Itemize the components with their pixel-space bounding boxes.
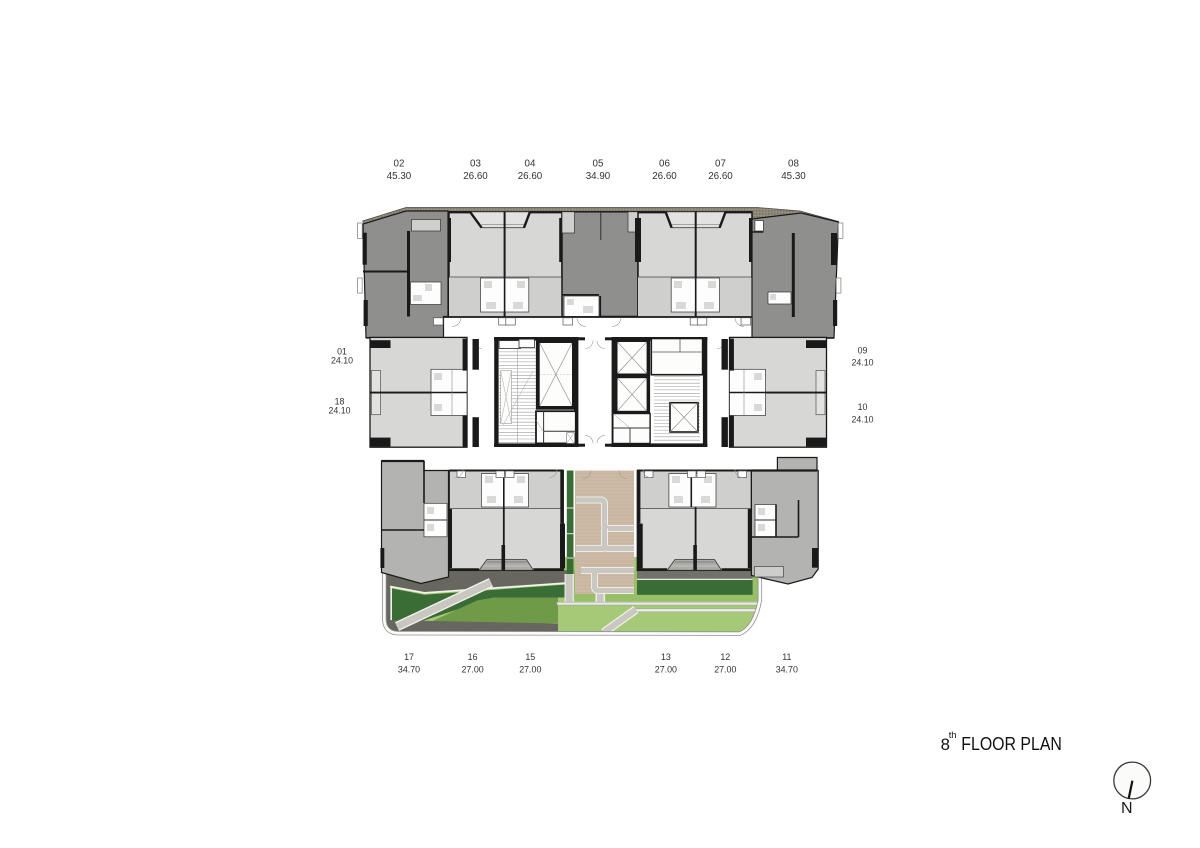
- svg-text:06: 06: [659, 159, 670, 170]
- svg-text:02: 02: [394, 159, 405, 170]
- svg-text:N: N: [1121, 800, 1133, 817]
- svg-text:04: 04: [525, 159, 536, 170]
- svg-text:24.10: 24.10: [328, 405, 350, 415]
- svg-text:24.10: 24.10: [851, 358, 873, 368]
- svg-text:16: 16: [468, 652, 478, 662]
- svg-text:45.30: 45.30: [781, 171, 806, 182]
- svg-text:17: 17: [404, 652, 414, 662]
- svg-text:27.00: 27.00: [519, 665, 541, 675]
- svg-text:th: th: [949, 730, 957, 740]
- svg-text:13: 13: [661, 652, 671, 662]
- svg-text:26.60: 26.60: [463, 171, 488, 182]
- svg-text:34.90: 34.90: [586, 171, 611, 182]
- svg-text:27.00: 27.00: [714, 665, 736, 675]
- svg-text:27.00: 27.00: [655, 665, 677, 675]
- svg-text:03: 03: [470, 159, 481, 170]
- svg-text:45.30: 45.30: [387, 171, 412, 182]
- svg-text:10: 10: [858, 402, 868, 412]
- svg-text:15: 15: [525, 652, 535, 662]
- svg-text:26.60: 26.60: [708, 171, 733, 182]
- svg-text:09: 09: [858, 345, 868, 355]
- svg-text:07: 07: [715, 159, 726, 170]
- svg-text:34.70: 34.70: [776, 665, 798, 675]
- svg-text:27.00: 27.00: [461, 665, 483, 675]
- svg-text:26.60: 26.60: [652, 171, 677, 182]
- svg-text:FLOOR PLAN: FLOOR PLAN: [961, 734, 1062, 754]
- svg-text:12: 12: [720, 652, 730, 662]
- svg-text:26.60: 26.60: [518, 171, 543, 182]
- svg-text:05: 05: [593, 159, 604, 170]
- svg-text:11: 11: [782, 652, 791, 662]
- svg-text:08: 08: [788, 159, 799, 170]
- svg-text:34.70: 34.70: [398, 665, 420, 675]
- svg-text:24.10: 24.10: [331, 355, 353, 365]
- svg-text:24.10: 24.10: [851, 415, 873, 425]
